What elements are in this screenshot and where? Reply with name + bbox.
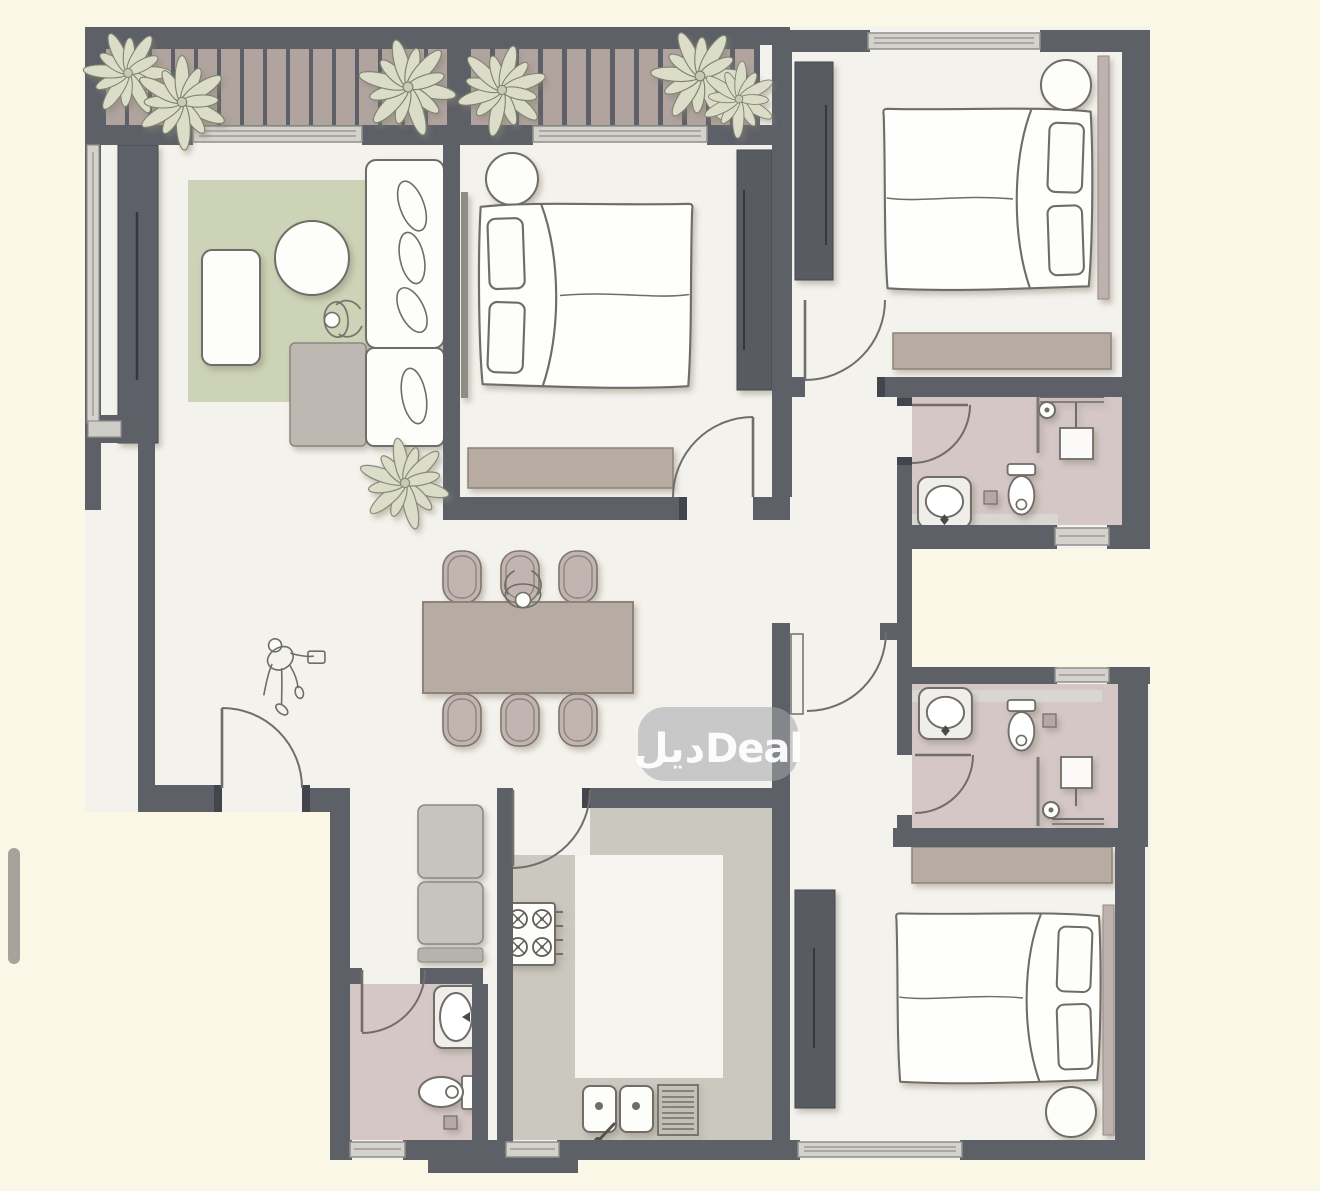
kitchen-floor [575, 855, 723, 1078]
watermark-text: ديلDeal [634, 726, 802, 772]
dining-chair [559, 551, 597, 603]
bath-2-floor-drain [1043, 714, 1056, 727]
wall [330, 1140, 352, 1160]
bath-1-toilet [1008, 464, 1036, 515]
hall-cabinet [418, 805, 483, 878]
dining-chair [559, 694, 597, 746]
door-jamb [679, 497, 687, 520]
stove-burner [533, 910, 551, 928]
wall [907, 525, 1057, 549]
bedroom-1-headboard [461, 192, 468, 398]
kitchen-counter-left [513, 855, 575, 1078]
wall [897, 465, 912, 527]
deck-divider [453, 45, 467, 128]
bedroom-2-side-table [1046, 1087, 1096, 1137]
balcony-door-sill [193, 126, 362, 142]
round-side-table [275, 221, 349, 295]
wall [330, 968, 362, 984]
bedroom-1-window [533, 126, 707, 142]
bedroom-2-bed [896, 913, 1100, 1083]
bedroom-3-dresser [893, 333, 1111, 369]
bedroom-1-side-table [486, 153, 538, 205]
bath-1-sink [918, 477, 971, 528]
door-jamb [214, 785, 222, 812]
bedroom-3-bed [883, 109, 1092, 290]
wall [420, 968, 483, 984]
wall [1122, 30, 1150, 549]
wall [138, 785, 222, 812]
bedroom-3-wardrobe [795, 62, 833, 280]
hall-shelf [418, 948, 483, 962]
wall [772, 45, 792, 497]
scrollbar-thumb[interactable] [8, 848, 20, 964]
hall-cabinet [418, 882, 483, 944]
wall [897, 527, 912, 667]
wall [792, 377, 805, 397]
wall [138, 443, 155, 785]
wall [362, 125, 533, 145]
dining-table [423, 602, 633, 693]
bedroom-3-window [868, 33, 1040, 49]
wall [557, 1140, 773, 1160]
bedroom-1-bench [468, 448, 673, 488]
bath-2-shower-tray [1061, 757, 1092, 788]
wall [497, 788, 513, 1160]
bedroom-2-headboard [1103, 905, 1114, 1135]
wall [753, 497, 790, 520]
bedroom-3-headboard [1098, 56, 1109, 299]
wall [912, 667, 1057, 684]
wall [772, 623, 790, 1160]
dining-chair [443, 551, 481, 603]
wall [472, 984, 488, 1160]
furniture-shape [1045, 408, 1050, 413]
bath-1-shower-tray [1060, 428, 1093, 459]
dining-chair [501, 694, 539, 746]
bedroom-1-wardrobe [737, 150, 772, 390]
dining-chair [443, 694, 481, 746]
coffee-table [202, 250, 260, 365]
sofa-chaise [290, 343, 366, 446]
bath-3-floor-drain [444, 1116, 457, 1129]
wall [885, 377, 1122, 397]
corridor-door-leaf [791, 634, 803, 714]
wall [960, 1140, 1145, 1160]
wall [1115, 847, 1145, 1160]
bath-2-toilet [1008, 700, 1036, 751]
wall [897, 667, 912, 755]
wall [790, 30, 870, 52]
wall [880, 623, 912, 640]
door-jamb [877, 377, 885, 397]
bath-2-sink [919, 688, 972, 739]
furniture-shape [1049, 808, 1054, 813]
bedroom-1-bed [479, 204, 693, 388]
wall [1107, 525, 1150, 549]
wall [1118, 667, 1148, 847]
floor-plan-page: ديلDeal [0, 0, 1320, 1191]
wall [590, 788, 773, 808]
wall [443, 497, 687, 520]
wall [443, 145, 460, 520]
exterior-notch [912, 549, 1150, 667]
door-jamb [897, 398, 912, 406]
door-jamb [897, 457, 912, 465]
stove-burner [533, 938, 551, 956]
wall [893, 828, 1118, 847]
window-ledge [88, 421, 121, 437]
floor-plan-image: ديلDeal [0, 0, 1320, 1191]
bedroom-2-window [798, 1142, 962, 1157]
sink-drain-dot [632, 1102, 640, 1110]
wall [897, 815, 912, 828]
bath-3-toilet-flush [446, 1086, 458, 1098]
bedroom-3-side-table [1041, 60, 1091, 110]
bath-1-floor-drain [984, 491, 997, 504]
bedroom-2-dresser [912, 847, 1112, 883]
door-jamb [302, 785, 310, 812]
sink-drain-dot [595, 1102, 603, 1110]
